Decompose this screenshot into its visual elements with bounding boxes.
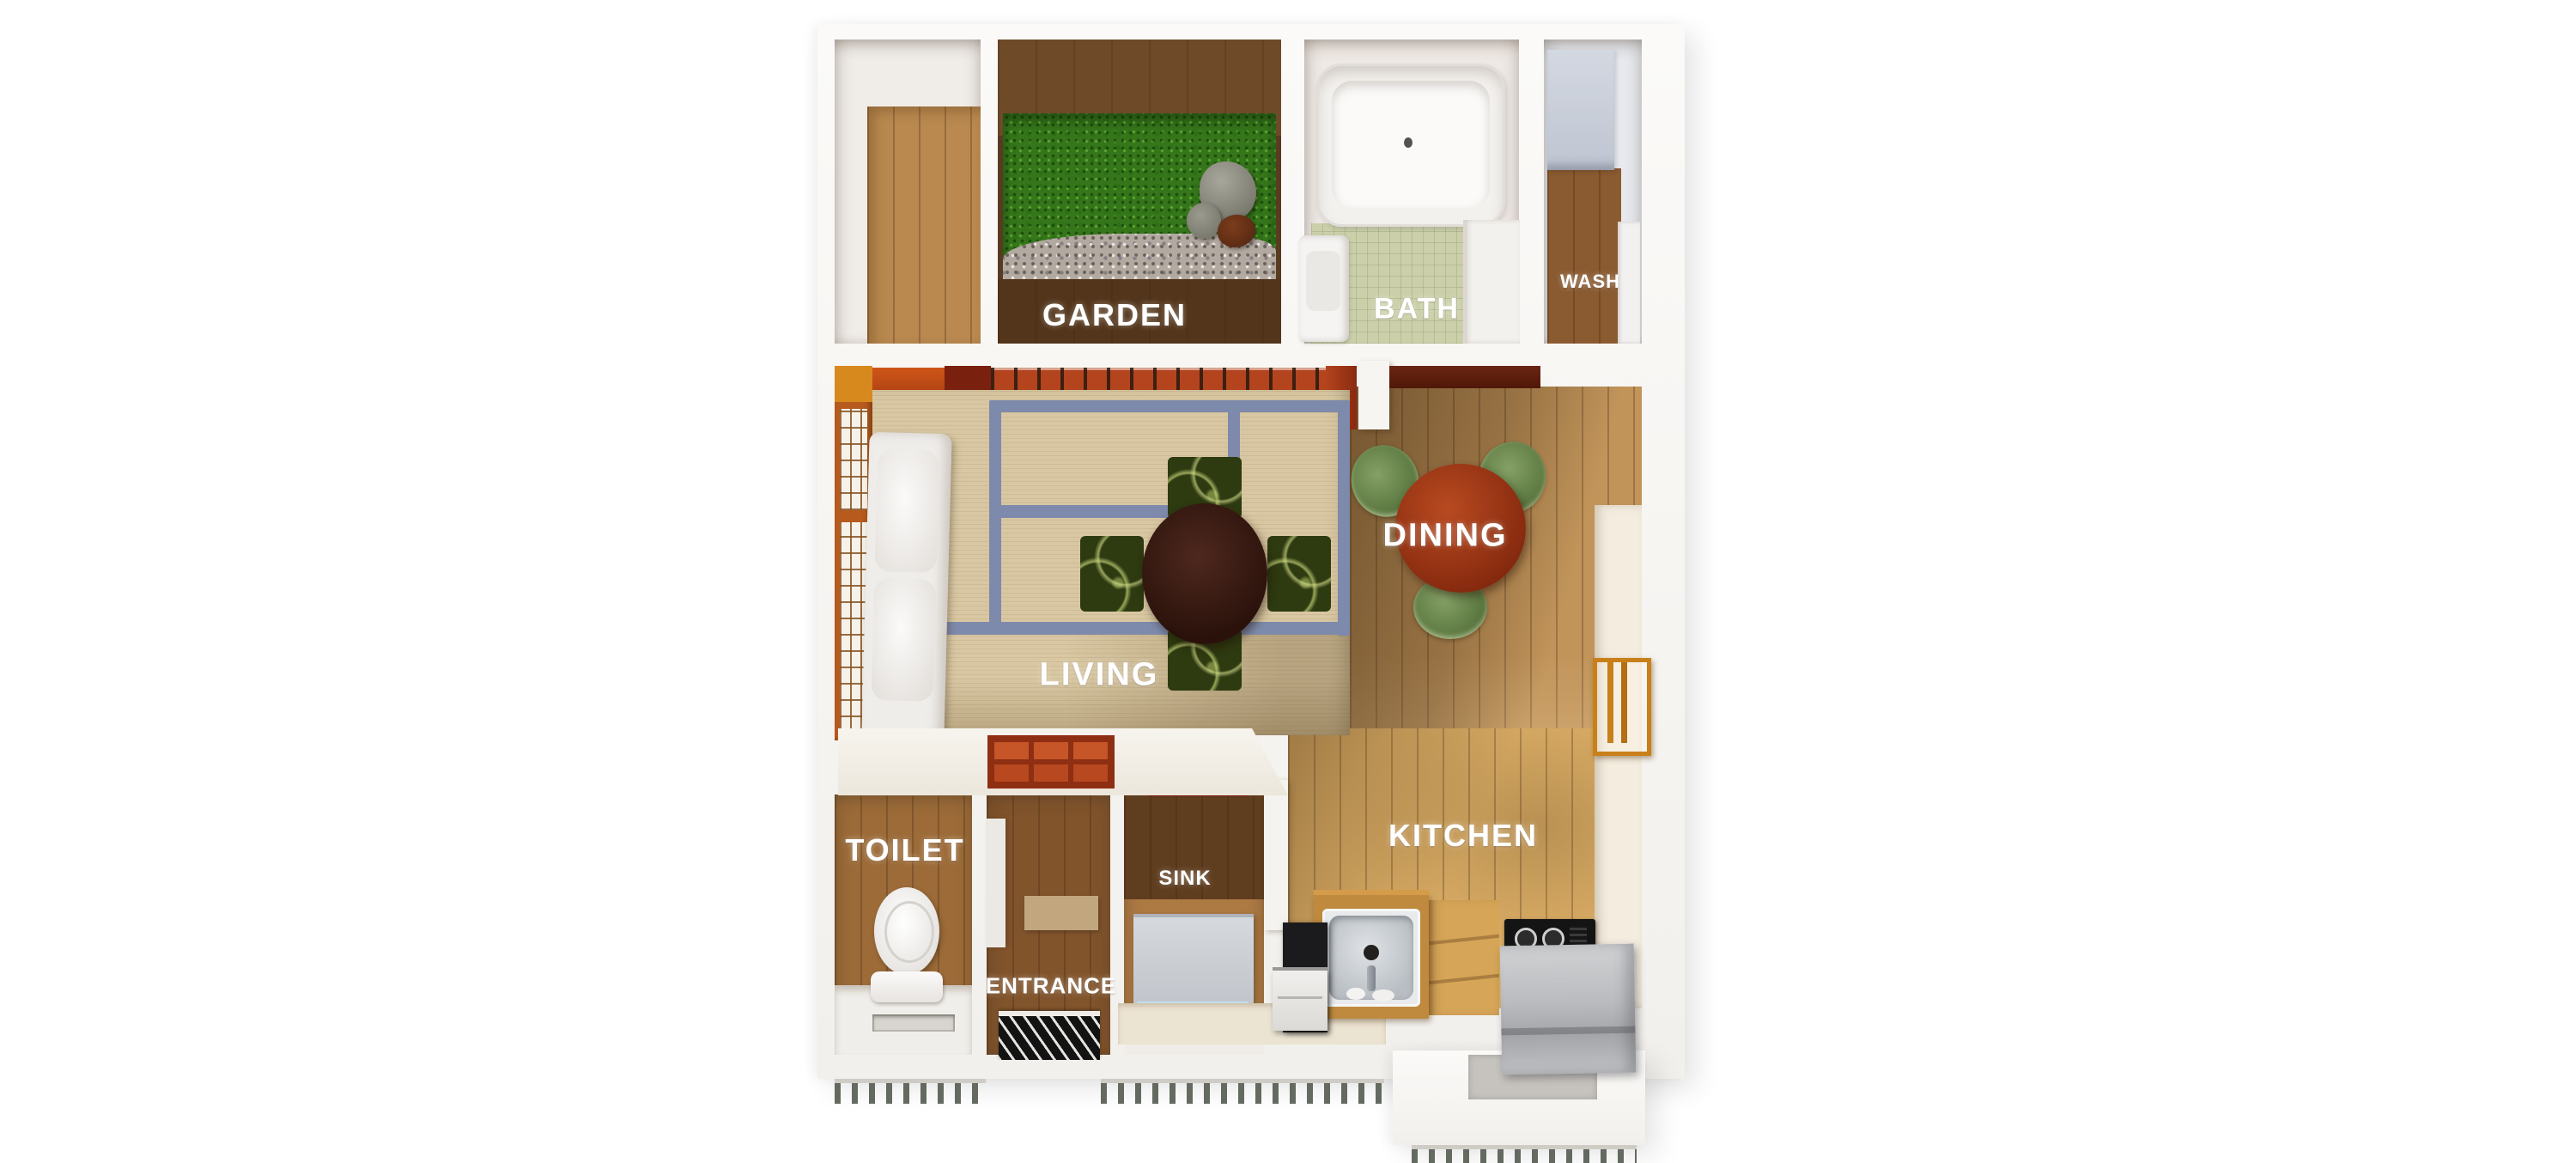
deck-ticks-balcony [1412,1145,1637,1163]
wash-wood-floor [1547,168,1621,344]
bath-door [1463,220,1520,344]
kitchen-sink-basin-outer [1322,909,1420,1007]
kitchen-sink-drain [1364,945,1379,960]
shoe-bench [1024,896,1098,930]
wall-shelf-bar-1 [1607,662,1613,743]
toilet-bowl-rim [884,901,934,963]
floor-plan: GARDEN BATH WASH [817,24,1685,1163]
shoji-top-amber [835,366,872,402]
step-cell-3 [1073,742,1108,759]
sofa-cushion-top [874,449,939,573]
bath-sink-basin [1306,251,1340,311]
corridor-kitchen-pillar [1264,780,1288,930]
room-entrance [987,795,1110,1055]
bath-sink [1299,235,1349,342]
refrigerator-shadow-band [1501,1026,1635,1036]
tatami-step-red [987,735,1115,789]
floor-cushion-west [1080,536,1144,612]
room-closet [835,40,981,344]
washing-area-cabinet [1547,50,1614,170]
room-wash [1544,40,1642,344]
drawer-unit [1273,971,1327,1031]
room-label-sink: SINK [1158,867,1211,891]
sofa [861,432,951,740]
kitchen-steps [1429,900,1499,1015]
room-label-bath: BATH [1374,293,1460,326]
living-low-table [1142,503,1267,644]
drawer-line [1278,996,1322,999]
floor-cushion-east [1267,536,1331,612]
toilet-bowl [874,887,939,975]
dining-wall-stub [1358,361,1389,429]
deck-ticks-left [835,1079,986,1104]
tatami-border-top [989,400,1350,412]
step-cell-5 [1034,764,1068,782]
toilet-tray [872,1014,955,1032]
kitchen-sink-soap-2 [1372,989,1394,1002]
kitchen-right-wall [1595,505,1642,1008]
room-label-entrance: ENTRANCE [986,973,1116,1000]
genkan-mat [999,1011,1100,1060]
screenshot-canvas: GARDEN BATH WASH [0,0,2576,1163]
wash-door [1618,222,1640,344]
deck-ticks-middle [1101,1079,1384,1104]
tatami-border-bottom [893,622,1350,635]
room-label-wash: WASH [1560,271,1620,293]
entrance-wall-sliver [987,819,1005,947]
step-cell-4 [994,764,1029,782]
room-label-toilet: TOILET [845,832,964,868]
kitchen-step-edge-2 [1429,974,1499,985]
step-cell-1 [994,742,1029,759]
kitchen-sink-cabinet [1314,895,1429,1019]
garden-rock-small [1187,203,1221,239]
refrigerator [1500,944,1637,1075]
shoji-panel-upper [840,409,867,510]
toilet-tank [871,971,943,1002]
room-label-living: LIVING [1040,657,1159,694]
wall-shelf-bar-2 [1621,662,1627,743]
kitchen-sink-soap-1 [1346,988,1365,1000]
step-cell-2 [1034,742,1068,759]
bathtub [1316,64,1505,227]
closet-wood-floor [867,107,981,344]
room-label-dining: DINING [1383,518,1508,555]
dining-top-trim [1389,366,1540,388]
tatami-border-right [1338,411,1350,636]
room-label-kitchen: KITCHEN [1388,818,1538,854]
kitchen-sink-faucet [1367,965,1376,991]
step-cell-6 [1073,764,1108,782]
wall-shelf [1593,658,1651,756]
sofa-cushion-bottom [872,578,937,702]
kitchen-step-edge-1 [1429,935,1499,946]
room-label-garden: GARDEN [1042,297,1187,333]
bathtub-drain [1404,137,1413,148]
